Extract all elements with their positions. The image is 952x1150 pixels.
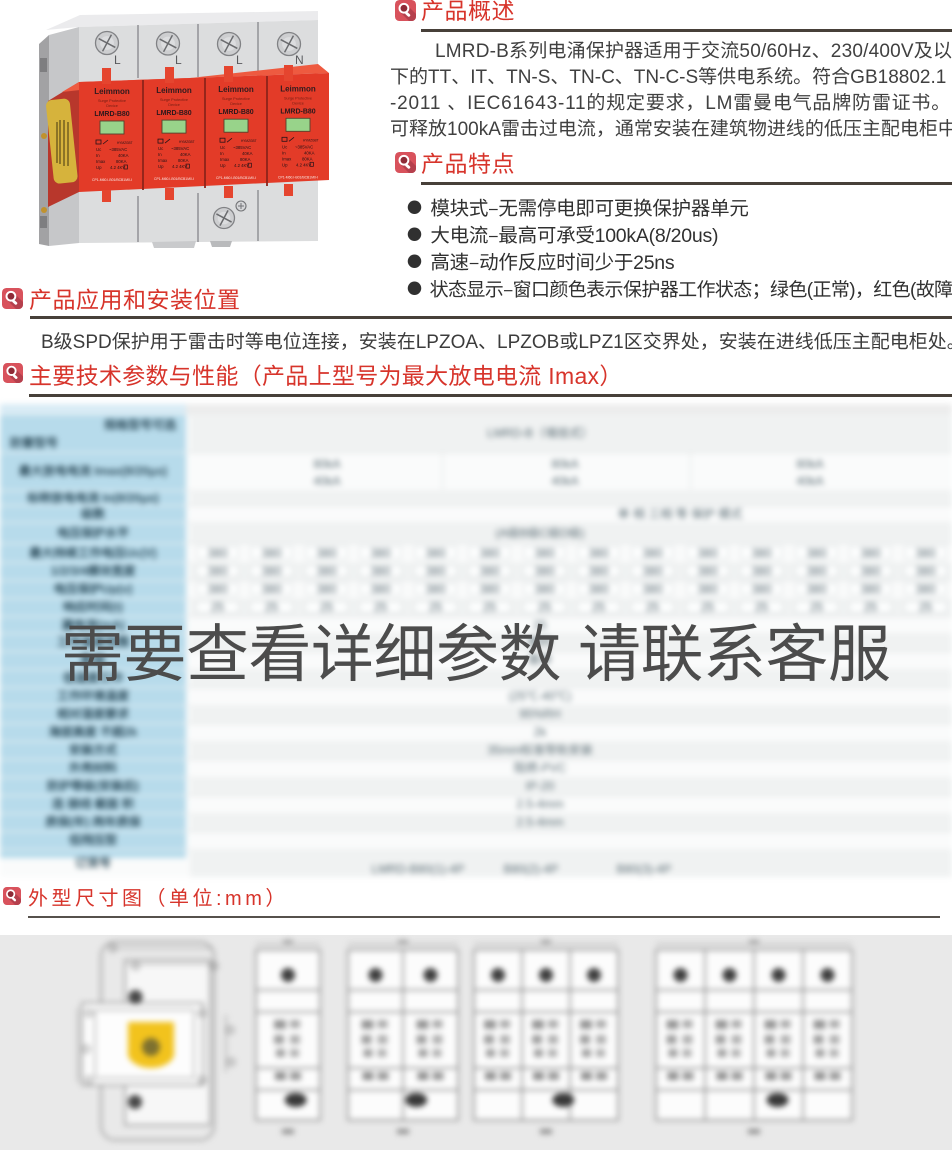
svg-text:LMRD-B80: LMRD-B80 xyxy=(156,108,191,118)
svg-text:4.2 4KV: 4.2 4KV xyxy=(296,162,311,168)
svg-text:L: L xyxy=(175,51,182,68)
svg-text:Leimmon: Leimmon xyxy=(280,83,316,94)
svg-text:CP1-M60.I-B01/BCB1M0-I: CP1-M60.I-B01/BCB1M0-I xyxy=(92,177,132,182)
svg-text:HYMZGBT: HYMZGBT xyxy=(241,138,257,143)
svg-text:HYMZGBT: HYMZGBT xyxy=(179,139,195,144)
svg-text:Up: Up xyxy=(282,162,288,168)
svg-text:LMRD-B80: LMRD-B80 xyxy=(280,106,315,116)
svg-text:L: L xyxy=(236,51,243,68)
svg-text:Leimmon: Leimmon xyxy=(218,84,254,95)
svg-text:LMRD-B80: LMRD-B80 xyxy=(218,107,253,117)
svg-text:HYMZGBT: HYMZGBT xyxy=(117,140,133,145)
svg-text:L: L xyxy=(114,51,121,68)
svg-text:Leimmon: Leimmon xyxy=(156,85,192,96)
svg-text:4.2 4KV: 4.2 4KV xyxy=(234,163,249,169)
svg-text:CP1-M60.I-B01/BCB1M0-I: CP1-M60.I-B01/BCB1M0-I xyxy=(278,174,318,179)
svg-text:Up: Up xyxy=(158,164,164,170)
svg-text:Up: Up xyxy=(220,163,226,169)
svg-text:CP1-M60.I-B01/BCB1M0-I: CP1-M60.I-B01/BCB1M0-I xyxy=(216,175,256,180)
svg-text:Leimmon: Leimmon xyxy=(94,86,130,97)
svg-text:4.2 4KV: 4.2 4KV xyxy=(172,164,187,170)
svg-text:HYMZGBT: HYMZGBT xyxy=(303,137,319,142)
svg-text:CP1-M60.I-B01/BCB1M0-I: CP1-M60.I-B01/BCB1M0-I xyxy=(154,176,194,181)
svg-text:LMRD-B80: LMRD-B80 xyxy=(94,109,129,119)
svg-text:4.2 4KV: 4.2 4KV xyxy=(110,165,125,171)
svg-text:N: N xyxy=(295,51,304,68)
svg-text:Up: Up xyxy=(96,165,102,171)
